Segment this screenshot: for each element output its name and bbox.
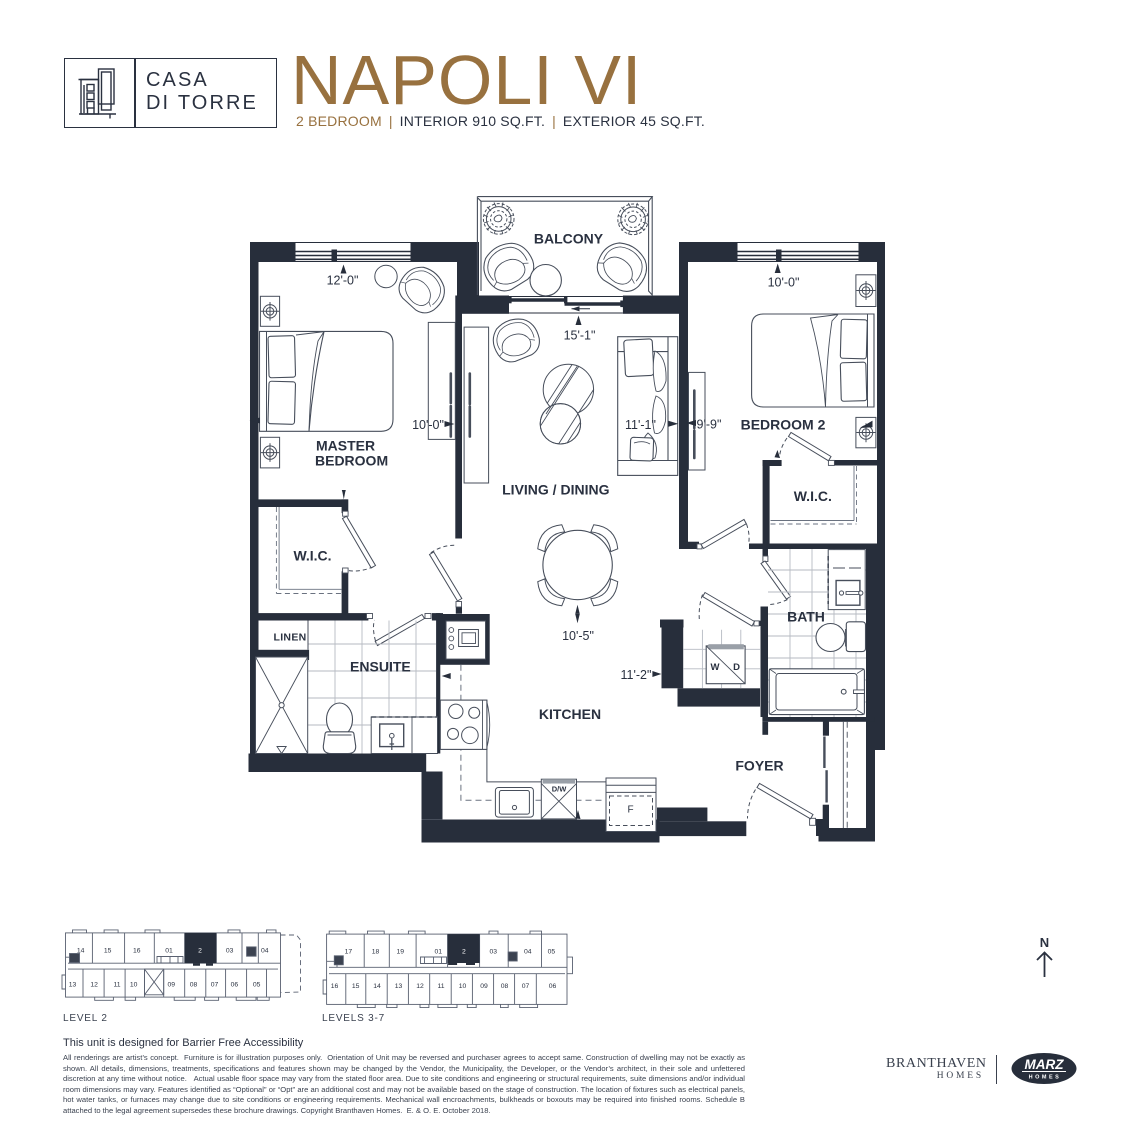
svg-text:17: 17 [345, 949, 353, 956]
svg-text:10'-0": 10'-0" [412, 418, 444, 432]
svg-text:11'-2": 11'-2" [621, 668, 652, 682]
svg-text:14: 14 [373, 983, 381, 990]
svg-text:D: D [733, 662, 740, 673]
svg-text:14: 14 [77, 948, 85, 955]
svg-text:01: 01 [165, 948, 173, 955]
svg-text:2: 2 [198, 948, 202, 955]
svg-text:05: 05 [253, 981, 261, 988]
svg-text:N: N [1040, 935, 1049, 950]
svg-text:06: 06 [549, 983, 557, 990]
svg-text:15'-1": 15'-1" [564, 329, 596, 343]
svg-text:15: 15 [352, 983, 360, 990]
svg-text:KITCHEN: KITCHEN [539, 706, 601, 722]
svg-text:05: 05 [548, 949, 556, 956]
svg-text:LIVING / DINING: LIVING / DINING [502, 482, 609, 498]
svg-text:06: 06 [231, 981, 239, 988]
svg-text:03: 03 [226, 948, 234, 955]
svg-text:LINEN: LINEN [274, 632, 307, 644]
svg-text:10'-0": 10'-0" [768, 276, 800, 290]
svg-text:11: 11 [113, 981, 120, 988]
svg-text:16: 16 [331, 983, 339, 990]
svg-text:10: 10 [130, 981, 138, 988]
svg-text:9'-9": 9'-9" [697, 417, 722, 431]
svg-text:11: 11 [437, 983, 444, 990]
svg-text:11'-1": 11'-1" [625, 418, 656, 432]
svg-text:10'-5": 10'-5" [562, 629, 594, 643]
svg-text:16: 16 [133, 948, 141, 955]
svg-text:12: 12 [416, 983, 424, 990]
svg-text:HOMES: HOMES [1029, 1075, 1062, 1081]
svg-text:08: 08 [190, 981, 198, 988]
svg-text:W.I.C.: W.I.C. [794, 488, 832, 504]
svg-text:FOYER: FOYER [735, 758, 783, 774]
svg-text:10: 10 [459, 983, 467, 990]
svg-text:12: 12 [90, 981, 98, 988]
svg-text:13: 13 [395, 983, 403, 990]
svg-text:04: 04 [524, 949, 532, 956]
svg-text:18: 18 [372, 949, 380, 956]
svg-text:08: 08 [501, 983, 509, 990]
svg-text:12'-0": 12'-0" [327, 274, 359, 288]
svg-text:03: 03 [490, 949, 498, 956]
svg-text:07: 07 [522, 983, 530, 990]
svg-text:BALCONY: BALCONY [534, 231, 604, 247]
svg-text:19: 19 [397, 949, 405, 956]
svg-text:ENSUITE: ENSUITE [350, 659, 411, 675]
svg-text:09: 09 [168, 981, 176, 988]
svg-text:MASTERBEDROOM: MASTERBEDROOM [315, 438, 388, 469]
svg-text:W.I.C.: W.I.C. [293, 547, 331, 563]
svg-text:W: W [711, 662, 720, 673]
svg-text:F: F [627, 805, 633, 816]
svg-text:13: 13 [69, 981, 77, 988]
svg-text:01: 01 [435, 949, 443, 956]
svg-text:BATH: BATH [787, 609, 825, 625]
svg-text:2: 2 [462, 949, 466, 956]
svg-text:04: 04 [261, 948, 269, 955]
svg-text:15: 15 [104, 948, 112, 955]
svg-text:D/W: D/W [552, 785, 568, 794]
svg-text:MARZ: MARZ [1025, 1057, 1065, 1072]
svg-text:BEDROOM 2: BEDROOM 2 [741, 416, 826, 432]
svg-text:07: 07 [211, 981, 219, 988]
svg-text:09: 09 [480, 983, 488, 990]
